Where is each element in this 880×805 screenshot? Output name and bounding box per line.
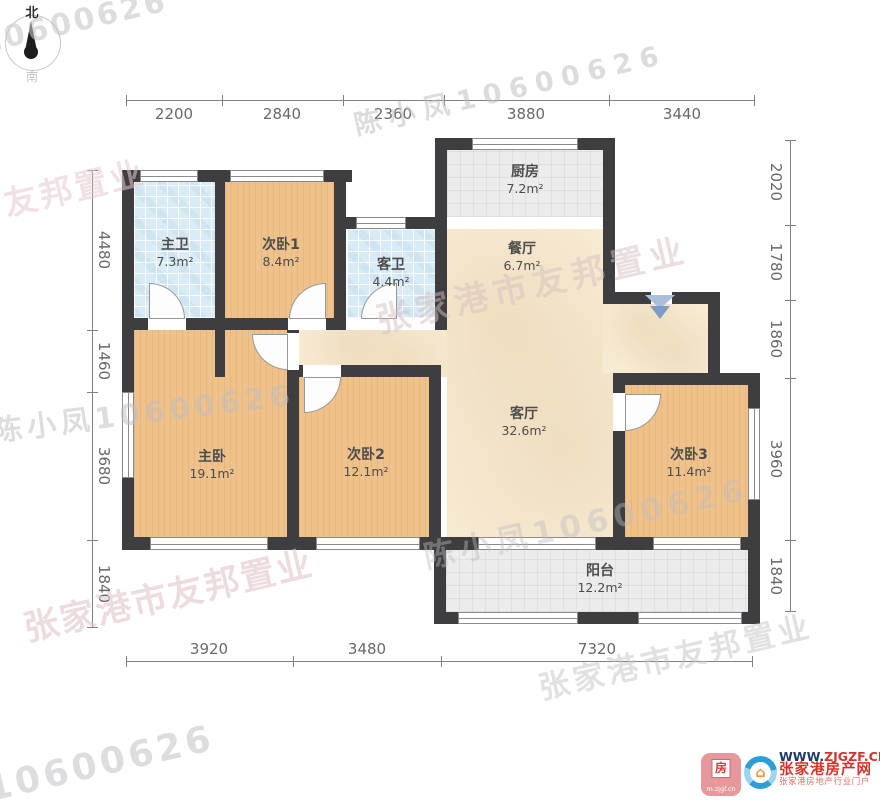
dimension-line-left <box>92 170 93 628</box>
window-kitchen <box>472 138 578 150</box>
dim-tick <box>785 540 796 541</box>
dim-tick <box>609 95 610 106</box>
wall-outer-left <box>122 170 134 550</box>
wall-kitchen-left <box>435 138 447 330</box>
dim-tick <box>87 627 98 628</box>
room-label-kitchen: 厨房 7.2m² <box>506 163 543 197</box>
dim-tick <box>785 300 796 301</box>
floor-dining-living <box>447 229 613 537</box>
wall-bath-divider <box>215 182 225 377</box>
dim-tick <box>752 656 753 667</box>
kitchen-pass-opening <box>518 217 570 229</box>
door-gap-master-bedroom <box>287 333 299 370</box>
door-gap-bedroom3 <box>613 393 625 431</box>
dim-tick <box>785 140 796 141</box>
dim-bottom-3: 7320 <box>578 640 616 658</box>
watermark-company: 张家港市友邦置业 <box>18 535 318 651</box>
site-tagline: 张家港房地产行业门户 <box>779 778 880 787</box>
dim-bottom-1: 3920 <box>190 640 228 658</box>
dim-tick <box>87 330 98 331</box>
house-icon: ⌂ <box>744 756 777 789</box>
door-gap-bedroom2 <box>303 365 341 377</box>
door-gap-master-bath <box>148 318 186 330</box>
dimension-line-right <box>790 140 791 612</box>
room-label-living: 客厅 32.6m² <box>501 405 546 439</box>
compass: 北 南 <box>2 2 62 82</box>
door-gap-guest-bath <box>360 318 398 330</box>
mobile-site-app-icon[interactable]: 房 m.zjgf.cn <box>701 753 741 796</box>
window-balcony-right <box>638 612 742 624</box>
dim-top-4: 3880 <box>507 105 545 123</box>
window-guest-bath <box>356 217 406 229</box>
dim-tick <box>126 95 127 106</box>
dim-tick <box>754 95 755 106</box>
window-bedroom2-south <box>316 537 420 550</box>
dim-tick <box>293 656 294 667</box>
dim-top-3: 2360 <box>374 105 412 123</box>
dim-top-2: 2840 <box>263 105 301 123</box>
app-icon-house-char: 房 <box>712 759 731 778</box>
wall-entry-left <box>603 292 651 304</box>
dim-left-2: 1460 <box>95 342 113 380</box>
room-label-balcony: 阳台 12.2m² <box>577 562 622 596</box>
dim-right-5: 1840 <box>767 557 785 595</box>
dim-tick <box>126 656 127 667</box>
compass-north-label: 北 <box>25 2 38 21</box>
window-master-bedroom-south <box>150 537 268 550</box>
site-footer-text: WWW.ZJGZF.CN 张家港房产网 张家港房地产行业门户 <box>779 750 880 787</box>
wall-kitchen-right <box>603 138 615 304</box>
compass-hub <box>24 45 38 59</box>
dim-bottom-2: 3480 <box>348 640 386 658</box>
room-label-bedroom1: 次卧1 8.4m² <box>262 236 300 270</box>
window-bedroom3-east <box>748 408 760 500</box>
window-bedroom1 <box>230 170 324 182</box>
room-label-master-bath: 主卫 7.3m² <box>156 236 193 270</box>
room-label-bedroom3: 次卧3 11.4m² <box>666 446 711 480</box>
wall-bedroom1-right <box>334 170 346 330</box>
dim-top-1: 2200 <box>155 105 193 123</box>
watermark-agent: 陈小凤10600626 <box>0 709 219 805</box>
dim-tick <box>87 170 98 171</box>
dim-left-3: 3680 <box>95 447 113 485</box>
dim-right-4: 3960 <box>767 440 785 478</box>
dim-tick <box>785 611 796 612</box>
room-label-dining: 餐厅 6.7m² <box>503 240 540 274</box>
wall-bedroom3-top <box>613 373 760 385</box>
balcony-sliding-door <box>478 537 596 550</box>
zjgzf-logo-icon[interactable]: ⌂ <box>744 756 777 789</box>
wall-entry-side <box>708 292 720 385</box>
room-label-bedroom2: 次卧2 12.1m² <box>343 446 388 480</box>
dim-tick <box>87 540 98 541</box>
room-label-guest-bath: 客卫 4.4m² <box>372 256 409 290</box>
dim-tick <box>343 95 344 106</box>
compass-south-label: 南 <box>26 68 38 85</box>
dim-top-5: 3440 <box>663 105 701 123</box>
dim-tick <box>222 95 223 106</box>
dim-tick <box>444 95 445 106</box>
watermark-agent: 陈小凤10600626 <box>350 33 670 143</box>
entry-arrow-icon <box>650 306 670 319</box>
room-label-master-bedroom: 主卧 19.1m² <box>189 448 234 482</box>
window-balcony-left <box>458 612 578 624</box>
dim-left-4: 1840 <box>95 565 113 603</box>
window-bedroom3-south <box>653 537 741 550</box>
dim-right-3: 1860 <box>767 320 785 358</box>
dim-tick <box>785 225 796 226</box>
dim-tick <box>785 378 796 379</box>
floor-plan-image: 北 南 <box>0 0 880 805</box>
app-icon-url: m.zjgf.cn <box>701 785 741 793</box>
dimension-line-top <box>126 100 755 101</box>
dim-right-2: 1780 <box>767 243 785 281</box>
dim-tick <box>87 392 98 393</box>
window-master-bath <box>140 170 198 182</box>
dimension-line-bottom <box>126 661 753 662</box>
wall-bedroom2-east <box>429 365 441 537</box>
window-master-bedroom-west <box>122 392 134 478</box>
dim-left-1: 4480 <box>95 231 113 269</box>
dim-tick <box>441 656 442 667</box>
dim-right-1: 2020 <box>767 163 785 201</box>
door-gap-bedroom1 <box>288 318 326 330</box>
